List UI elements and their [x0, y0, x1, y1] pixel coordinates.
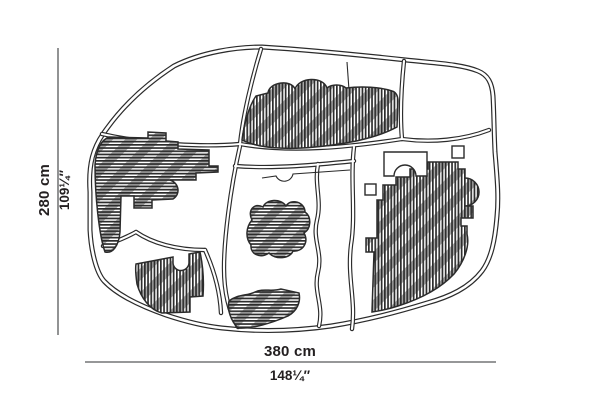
height-label-cm: 280 cm [36, 164, 53, 216]
small-square-top [452, 146, 464, 158]
small-square-left [365, 184, 376, 195]
diagram-canvas: 280 cm 109¼″ 380 cm 148¼″ [0, 0, 612, 420]
dimension-diagram: 280 cm 109¼″ 380 cm 148¼″ [0, 0, 612, 420]
center-hatched-cloud [247, 200, 310, 257]
horizontal-dimension: 380 cm 148¼″ [85, 343, 496, 383]
width-label-cm: 380 cm [264, 343, 316, 360]
height-label-inches: 109¼″ [57, 169, 72, 210]
vertical-dimension: 280 cm 109¼″ [36, 48, 72, 335]
width-label-inches: 148¼″ [270, 368, 311, 383]
